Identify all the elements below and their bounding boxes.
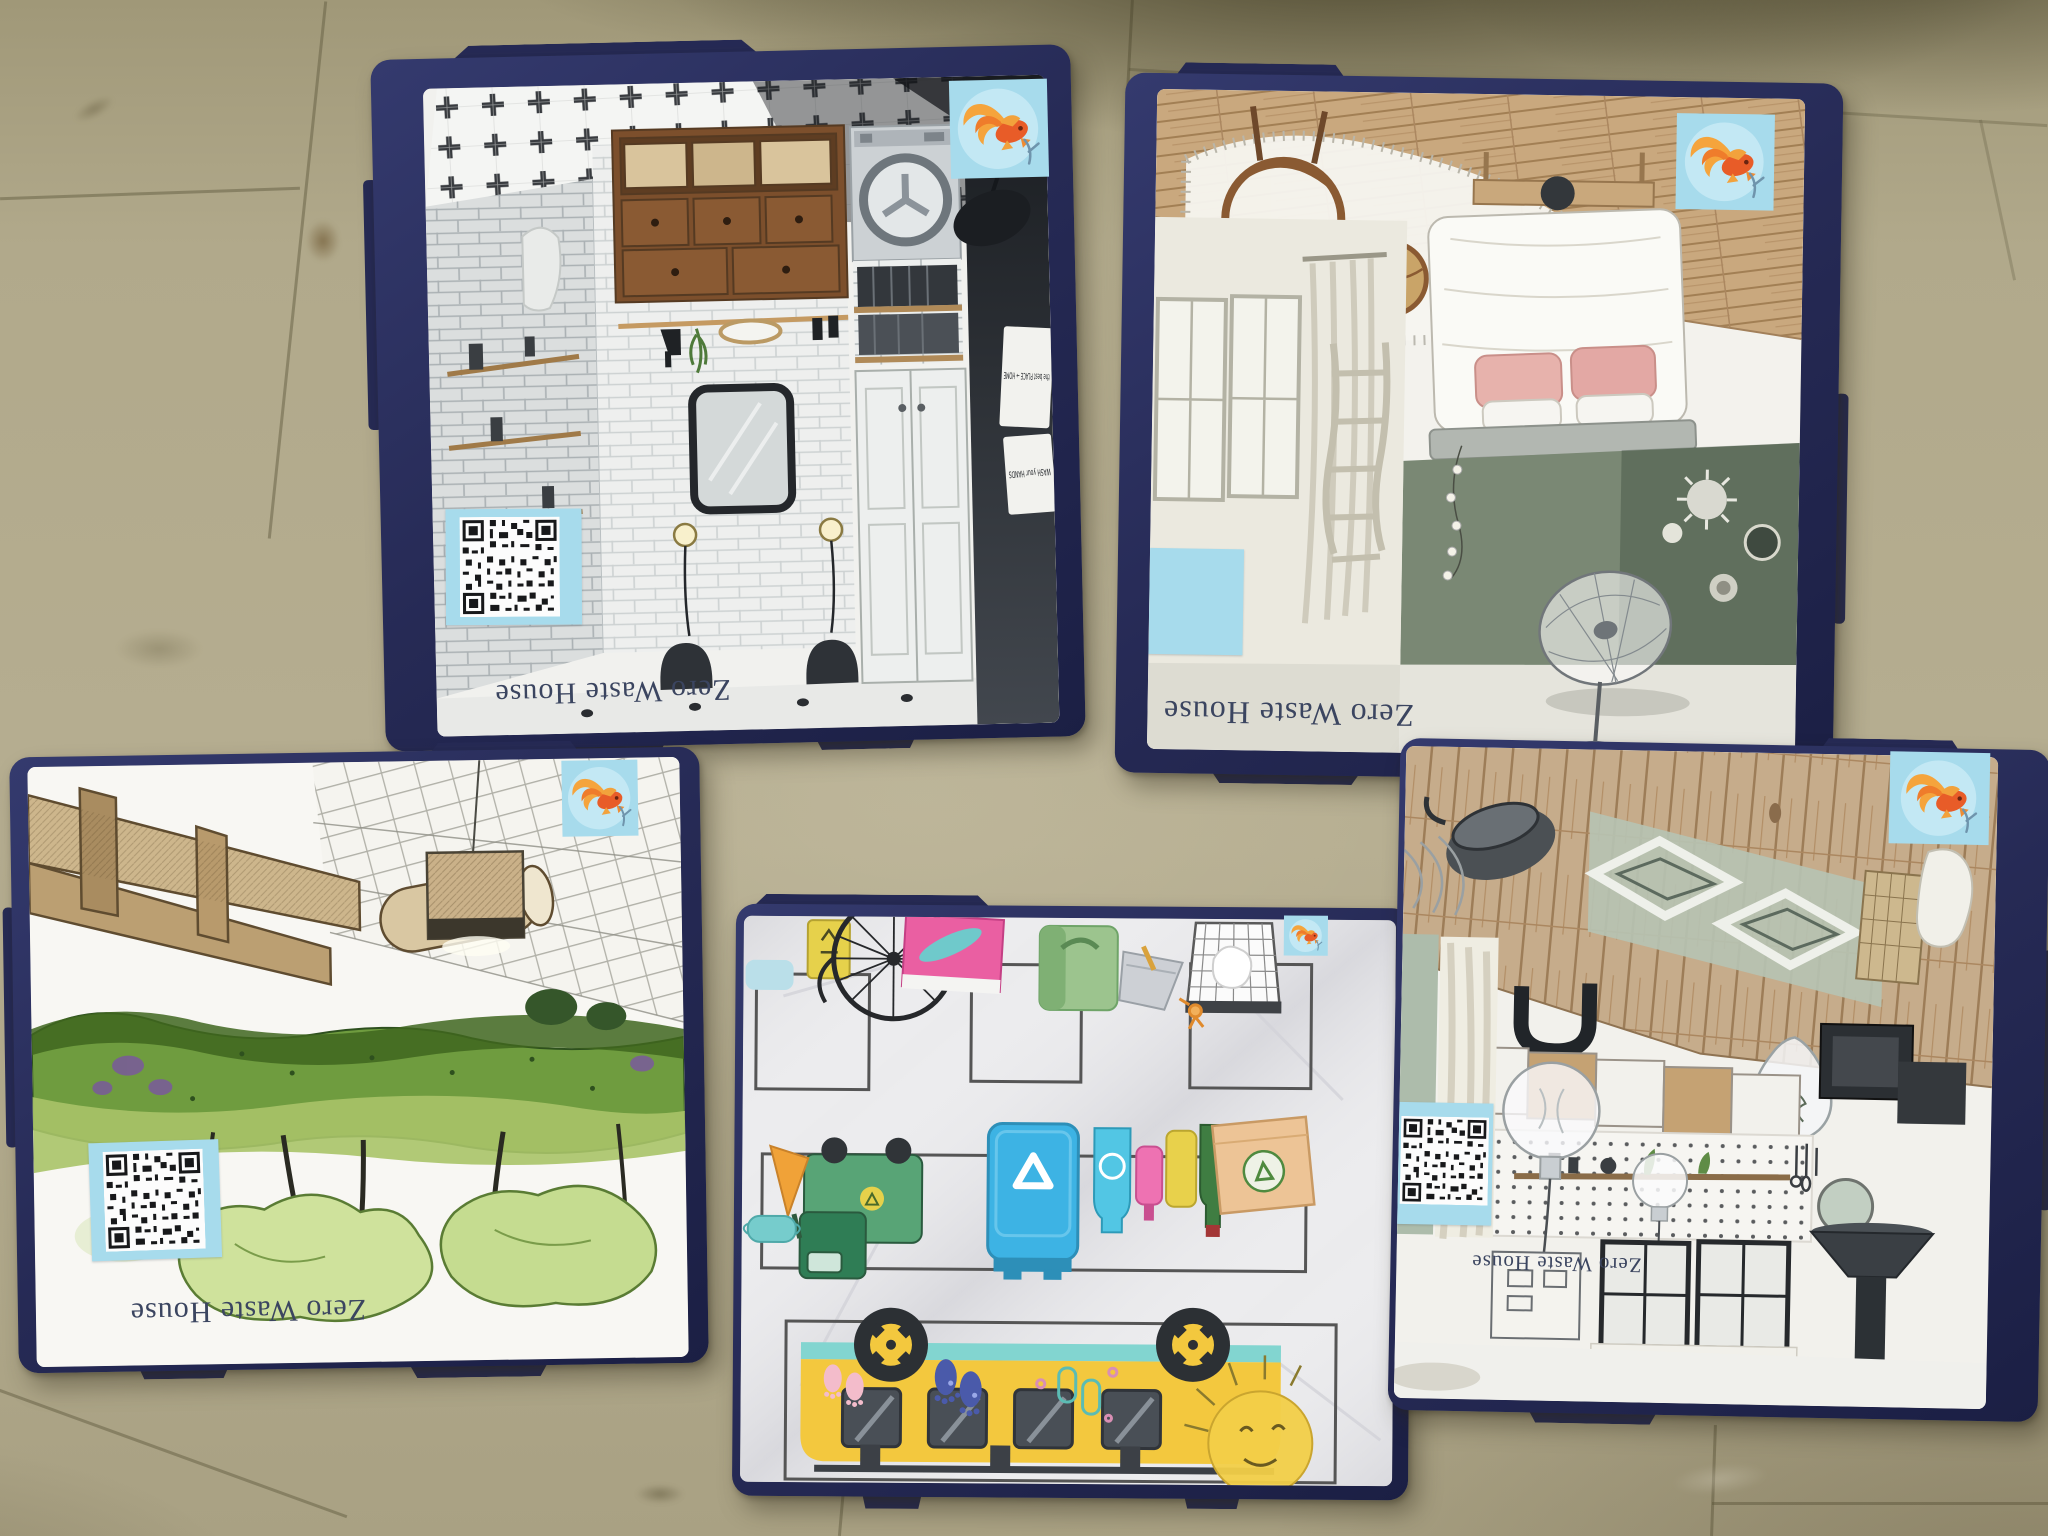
recycle-mask [744,1216,800,1242]
qr-code-sticker [445,509,582,626]
recycling-poster-print [740,916,1396,1487]
brand-text: Zero Waste House [1147,693,1432,734]
goldfish-logo-sticker [561,760,638,837]
floor-stain [116,630,202,668]
brand-text: Zero Waste House [476,672,749,712]
floor-scuff [1671,1459,1770,1499]
upside-down-bed [1422,208,1697,460]
goldfish-icon [568,767,631,830]
towel-shelves [853,259,963,365]
floor-stain [636,1484,684,1504]
recycling-poster-box [732,904,1412,1501]
tall-cabinet-doors [855,369,972,683]
brand-text: Zero Waste House [1466,1249,1646,1277]
goldfish-logo-sticker [1675,113,1774,211]
grout-line [0,187,300,200]
pink-pillow [1570,345,1656,400]
qr-code-icon [103,1149,206,1252]
grout-line [0,1389,347,1518]
pink-bag [902,916,1004,994]
floor-stain [70,91,117,128]
blue-recycling-bin [987,1123,1078,1280]
grout-line [1712,1502,2048,1505]
goldfish-logo-sticker [1889,751,1991,845]
wall-mirror [692,387,793,511]
bus-wheel [1156,1308,1231,1383]
goldfish-icon [1289,919,1322,952]
goldfish-icon [957,88,1039,170]
kitchen-illustration [1394,746,1998,1409]
grout-line [1979,119,2016,280]
grout-line [268,1,327,538]
goldfish-logo-sticker [949,79,1049,179]
qr-code-sticker [88,1139,222,1261]
photo-scene: the best PLACE → HOME WASH your HANDS Ze… [0,0,2048,1536]
green-wall-box: Zero Waste House [9,747,709,1374]
brand-text: Zero Waste House [120,1292,377,1330]
goldfish-icon [1900,760,1977,837]
kitchen-box: Zero Waste House [1388,738,2048,1422]
green-container [1039,926,1118,1011]
green-wall-print: Zero Waste House [27,757,688,1367]
goldfish-icon [1684,122,1764,202]
recycling-illustration [740,916,1396,1487]
goldfish-logo-sticker [1284,915,1328,955]
blank-cyan-patch [1148,548,1244,655]
qr-code-icon [1400,1116,1490,1206]
orange-paper-bag [1212,1117,1314,1214]
qr-code-icon [460,517,561,618]
wooden-drawer-cabinet [612,125,848,302]
kitchen-print: Zero Waste House [1394,746,1998,1409]
qr-code-sticker [1394,1102,1494,1226]
green-wall-illustration [27,757,688,1367]
laundry-room-box: the best PLACE → HOME WASH your HANDS Ze… [370,44,1086,752]
floor-stain [306,220,340,262]
bedroom-box: Zero Waste House [1115,72,1844,783]
washing-machine [850,125,961,261]
bus-wheel [854,1307,929,1382]
